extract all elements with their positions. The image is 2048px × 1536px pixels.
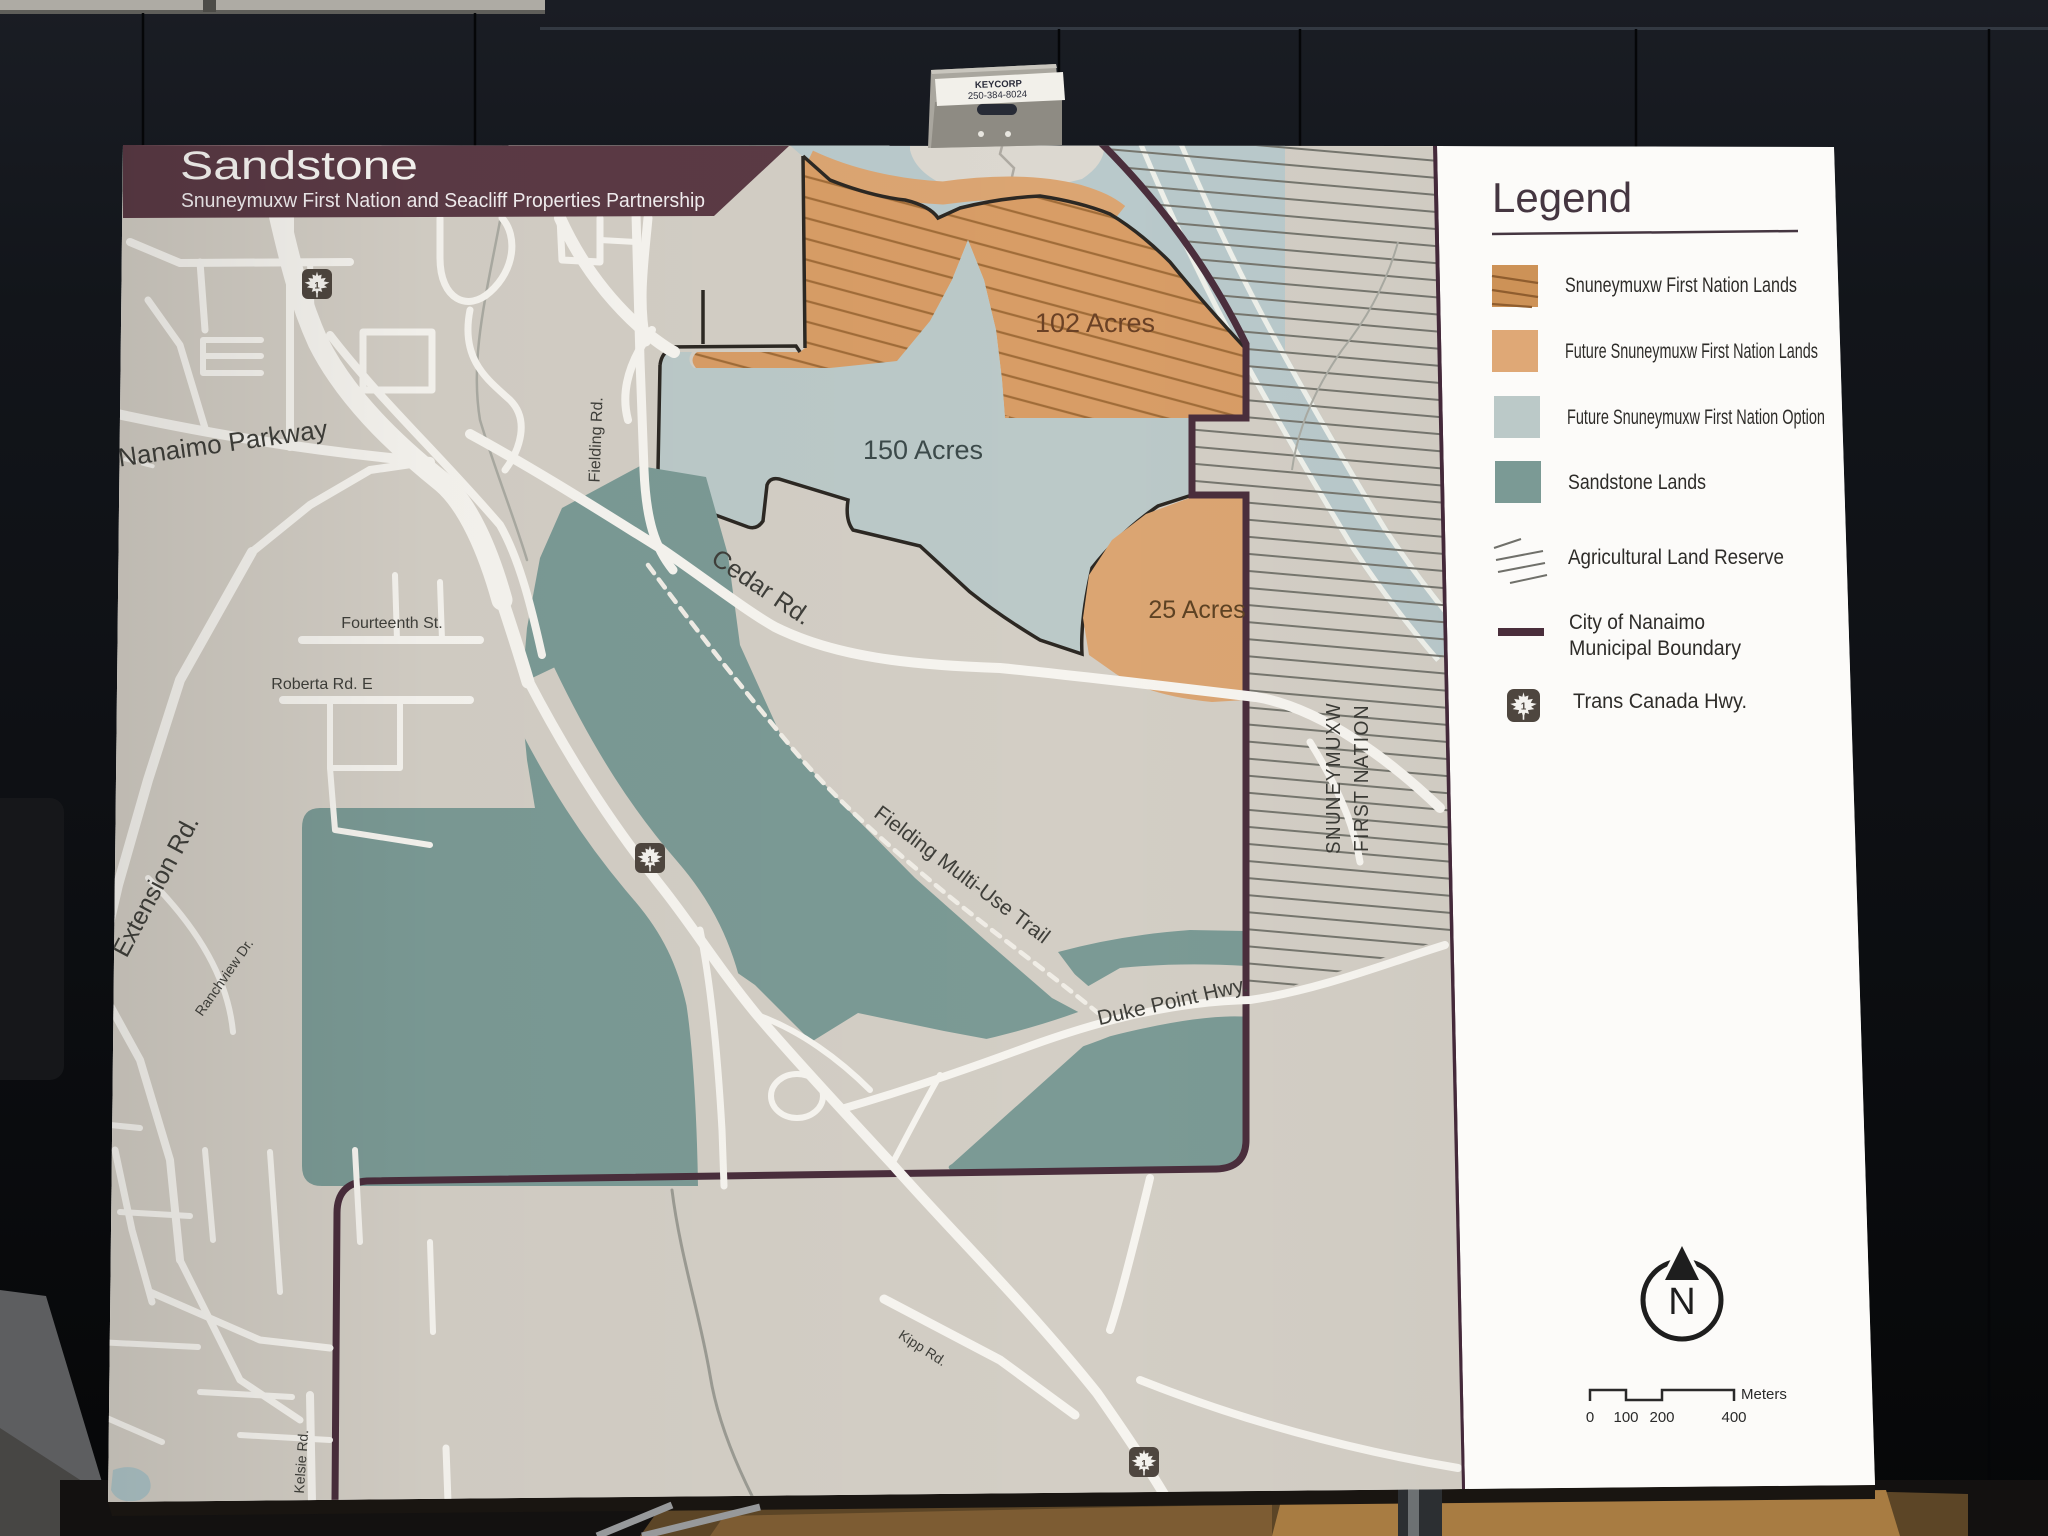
- svg-text:100: 100: [1613, 1409, 1638, 1426]
- svg-text:Agricultural Land Reserve: Agricultural Land Reserve: [1568, 546, 1784, 569]
- svg-text:250-384-8024: 250-384-8024: [968, 89, 1028, 102]
- svg-text:400: 400: [1721, 1409, 1746, 1426]
- svg-text:Trans Canada Hwy.: Trans Canada Hwy.: [1573, 690, 1747, 713]
- svg-text:Future Snuneymuxw First Nation: Future Snuneymuxw First Nation Lands: [1565, 340, 1818, 363]
- svg-text:City of Nanaimo: City of Nanaimo: [1569, 611, 1705, 634]
- svg-text:200: 200: [1649, 1409, 1674, 1426]
- svg-text:Snuneymuxw First Nation Lands: Snuneymuxw First Nation Lands: [1565, 274, 1797, 297]
- svg-text:Meters: Meters: [1741, 1386, 1787, 1403]
- svg-text:N: N: [1668, 1281, 1695, 1323]
- svg-text:Municipal Boundary: Municipal Boundary: [1569, 637, 1741, 660]
- svg-text:1: 1: [1521, 702, 1527, 713]
- svg-text:0: 0: [1586, 1409, 1594, 1426]
- svg-text:Legend: Legend: [1492, 174, 1632, 221]
- svg-text:Sandstone Lands: Sandstone Lands: [1568, 471, 1706, 494]
- svg-text:Future Snuneymuxw First Nation: Future Snuneymuxw First Nation Option: [1567, 406, 1825, 429]
